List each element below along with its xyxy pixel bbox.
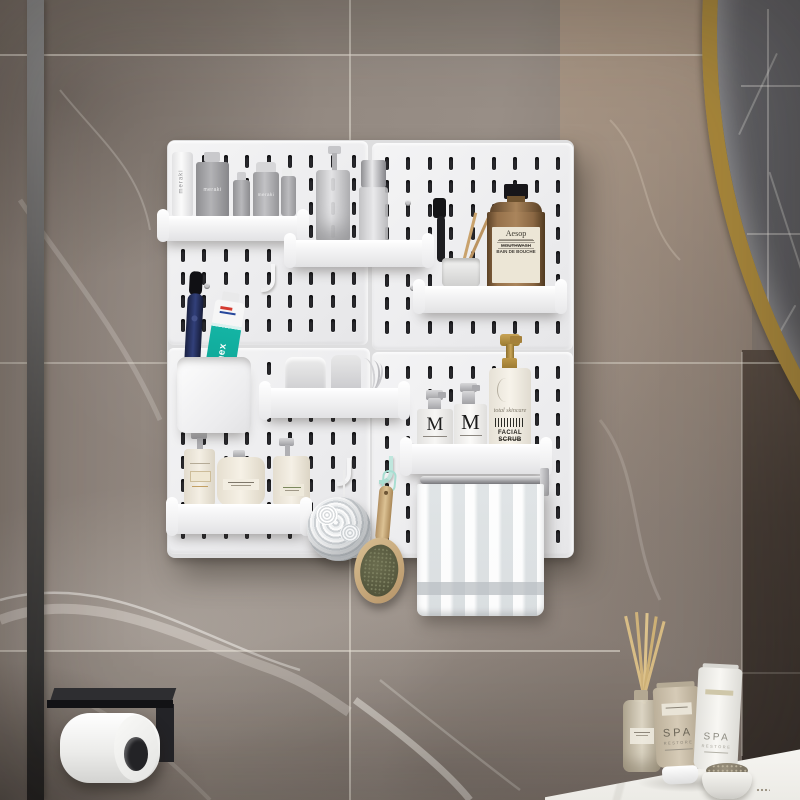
- spa-tube-white: SPA RESTORE: [693, 663, 742, 771]
- pegboard-slot: [181, 249, 185, 262]
- toothbrush-brush-head: [189, 271, 203, 296]
- pegboard-slot: [331, 432, 335, 445]
- pegboard-slot: [535, 413, 539, 426]
- pegboard-slot: [245, 319, 249, 332]
- tube-accent: [705, 689, 733, 695]
- pegboard-slot: [556, 251, 560, 264]
- pegboard-slot: [449, 204, 453, 217]
- pegboard-slot: [224, 249, 228, 262]
- pegboard-slot: [352, 202, 356, 215]
- brush-head: [351, 536, 407, 606]
- pegboard-slot: [556, 460, 560, 473]
- toothpaste-logo-mark: [220, 311, 236, 315]
- face-sketch: [497, 378, 515, 402]
- toothbrush-cup: [442, 258, 480, 287]
- pegboard-slot: [556, 413, 560, 426]
- pegboard-slot: [471, 180, 475, 193]
- pegboard-slot: [428, 180, 432, 193]
- pegboard-slot: [309, 319, 313, 332]
- pump-cap: [204, 152, 220, 162]
- pegboard-slot: [181, 295, 185, 308]
- pegboard-slot: [309, 272, 313, 285]
- aesop-bottle: Aesop MOUTHWASH BAIN DE BOUCHE: [487, 212, 545, 290]
- pegboard-slot: [513, 157, 517, 170]
- pegboard-slot: [352, 456, 356, 469]
- pegboard-slot: [471, 366, 475, 379]
- pegboard-slot: [202, 249, 206, 262]
- scrub-script: total skincare: [489, 408, 531, 415]
- shelf-middle: [261, 388, 408, 418]
- pegboard-slot: [492, 157, 496, 170]
- grout-line: [742, 672, 800, 674]
- scattered-salt: [756, 788, 770, 793]
- pegboard-slot: [352, 295, 356, 308]
- pegboard-slot: [309, 225, 313, 238]
- lotion-jar: [217, 457, 265, 506]
- meraki-pump-bottle: meraki: [196, 162, 229, 218]
- pegboard-slot: [267, 456, 271, 469]
- mount-screw: [405, 200, 411, 206]
- pegboard-slot: [309, 432, 313, 445]
- pegboard-slot: [513, 321, 517, 334]
- pegboard-slot: [202, 319, 206, 332]
- pegboard-slot: [449, 180, 453, 193]
- label-fine-print: [231, 485, 251, 486]
- label-fine-print: [190, 463, 210, 464]
- pegboard-slot: [267, 479, 271, 492]
- bathroom-scene: meraki meraki meraki Aesop MOUTHWASH BAI…: [0, 0, 800, 800]
- aesop-brand: Aesop: [492, 229, 540, 238]
- pegboard-slot: [406, 366, 410, 379]
- pegboard-slot: [471, 321, 475, 334]
- pegboard-slot: [556, 157, 560, 170]
- pegboard-slot: [352, 319, 356, 332]
- facial-scrub-bottle: total skincare FACIAL SCRUB: [489, 368, 531, 448]
- pegboard-slot: [245, 432, 249, 445]
- pegboard-slot: [288, 295, 292, 308]
- pegboard-slot: [352, 178, 356, 191]
- pegboard-slot: [385, 274, 389, 287]
- m-right-letter: M: [454, 410, 487, 434]
- pegboard-slot: [471, 157, 475, 170]
- clear-bottle: [359, 187, 388, 242]
- pegboard-slot: [331, 295, 335, 308]
- brush-handle-hole: [384, 491, 388, 495]
- mirror-vein: [769, 172, 800, 287]
- pegboard-slot: [535, 389, 539, 402]
- mirror-vein: [738, 53, 778, 135]
- pegboard-slot: [181, 272, 185, 285]
- pegboard-slot: [385, 436, 389, 449]
- pegboard-slot: [181, 319, 185, 332]
- label-fine-print: [228, 482, 254, 483]
- pegboard-slot: [449, 366, 453, 379]
- lotion-tall-bottle: [184, 449, 215, 506]
- m-left-letter: M: [417, 414, 453, 436]
- pegboard-slot: [224, 432, 228, 445]
- pegboard-slot: [556, 483, 560, 496]
- loofah-ruffle: [316, 505, 338, 525]
- small-grey-bottle: [233, 180, 250, 218]
- pegboard-slot: [245, 155, 249, 168]
- toothpaste-logo-mark: [220, 306, 232, 311]
- label-fine-print: [460, 435, 482, 436]
- towel-rail: [420, 476, 548, 484]
- brush-handle: [375, 485, 394, 542]
- label-fine-print: [192, 486, 208, 487]
- pegboard-slot: [449, 389, 453, 402]
- pegboard-slot: [406, 157, 410, 170]
- holder-cup: [177, 357, 251, 433]
- pegboard-slot: [385, 366, 389, 379]
- pegboard-slot: [535, 321, 539, 334]
- pegboard-slot: [428, 321, 432, 334]
- pegboard-slot: [267, 295, 271, 308]
- pegboard-slot: [267, 432, 271, 445]
- label-fine-print: [665, 748, 693, 750]
- mirror-reflection-seam: [741, 85, 800, 87]
- pegboard-slot: [181, 432, 185, 445]
- pegboard-slot: [352, 272, 356, 285]
- tile-bottom-left: [0, 651, 349, 800]
- brush-bristles: [361, 546, 397, 595]
- pegboard-slot: [385, 321, 389, 334]
- pegboard-slot: [331, 319, 335, 332]
- tube-top-label: [661, 702, 692, 716]
- shelf-top-right: [415, 286, 565, 313]
- label-fine-print: [704, 751, 728, 753]
- pegboard-slot: [535, 180, 539, 193]
- brush-bristle-pad: [358, 543, 400, 598]
- pegboard-slot: [288, 319, 292, 332]
- pegboard-slot: [352, 432, 356, 445]
- label-fine-print: [285, 490, 299, 491]
- meraki-spray-label: meraki: [253, 192, 279, 197]
- aesop-product-line2: BAIN DE BOUCHE: [492, 249, 540, 254]
- grout-line: [0, 650, 620, 652]
- toothbrush-head: [433, 198, 446, 218]
- pegboard-slot: [492, 180, 496, 193]
- barcode: [495, 418, 525, 427]
- meraki-tube: meraki: [172, 152, 193, 216]
- pegboard-slot: [406, 180, 410, 193]
- label-rule: [498, 240, 534, 241]
- pegboard-slot: [428, 157, 432, 170]
- pegboard-slot: [428, 366, 432, 379]
- pegboard-slot: [288, 155, 292, 168]
- scrub-spout: [510, 336, 522, 343]
- pump-stem: [332, 153, 337, 171]
- m-bottle-left: M: [417, 409, 453, 449]
- pegboard-slot: [556, 436, 560, 449]
- pegboard-slot: [352, 155, 356, 168]
- dark-tile-column: [742, 350, 800, 770]
- pegboard-slot: [556, 530, 560, 543]
- grout-line: [741, 352, 743, 756]
- shelf-middle-right: [402, 444, 550, 474]
- diffuser-label: [630, 728, 654, 744]
- pegboard-slot: [449, 227, 453, 240]
- pegboard-slot: [556, 227, 560, 240]
- small-bottle: [281, 176, 296, 216]
- label-fine-print: [283, 487, 301, 488]
- pegboard-slot: [556, 366, 560, 379]
- scrub-name: FACIAL SCRUB: [489, 430, 531, 444]
- chrome-cap: [361, 160, 386, 188]
- m-right-neck: [462, 391, 475, 405]
- pegboard-slot: [535, 157, 539, 170]
- black-toothbrush: [437, 216, 445, 262]
- pegboard-slot: [331, 456, 335, 469]
- pegboard-slot: [385, 297, 389, 310]
- pegboard-slot: [309, 155, 313, 168]
- pegboard-slot: [309, 202, 313, 215]
- label-fine-print: [666, 706, 688, 708]
- pegboard-slot: [449, 157, 453, 170]
- mount-screw: [204, 283, 210, 289]
- roll-core-hole: [124, 737, 148, 771]
- pegboard-slot: [267, 319, 271, 332]
- pegboard-slot: [288, 272, 292, 285]
- grout-line: [0, 54, 800, 56]
- pegboard-slot: [556, 180, 560, 193]
- pegboard-slot: [331, 479, 335, 492]
- pegboard-slot: [406, 227, 410, 240]
- tube-body: SPA RESTORE: [693, 667, 742, 771]
- meraki-tube-label: meraki: [179, 151, 186, 211]
- pegboard-slot: [267, 362, 271, 375]
- pegboard-slot: [331, 272, 335, 285]
- label-fine-print: [634, 732, 650, 733]
- pegboard-slot: [309, 178, 313, 191]
- pegboard-slot: [267, 249, 271, 262]
- pegboard-slot: [535, 366, 539, 379]
- towel: [417, 484, 544, 616]
- label-fine-print: [423, 436, 447, 437]
- pegboard-slot: [556, 321, 560, 334]
- pegboard-slot: [224, 272, 228, 285]
- towel-band: [417, 582, 544, 595]
- pegboard-slot: [245, 272, 249, 285]
- pegboard-slot: [449, 321, 453, 334]
- pegboard-slot: [245, 249, 249, 262]
- aesop-product-line1: MOUTHWASH: [492, 243, 540, 248]
- spa-white-line: RESTORE: [694, 744, 738, 751]
- pegboard-slot: [428, 204, 432, 217]
- clear-pump-bottle: [316, 170, 350, 242]
- pegboard-slot: [556, 389, 560, 402]
- pegboard-slot: [556, 506, 560, 519]
- tp-holder-edge: [47, 700, 173, 708]
- pegboard-slot: [406, 321, 410, 334]
- pegboard-slot: [309, 295, 313, 308]
- pegboard-slot: [352, 225, 356, 238]
- lotion3-label: [280, 484, 304, 496]
- pegboard-slot: [406, 297, 410, 310]
- lotion-label: [190, 471, 211, 482]
- aesop-label: Aesop MOUTHWASH BAIN DE BOUCHE: [492, 227, 540, 283]
- shelf-top-middle: [286, 240, 432, 267]
- shower-frame: [27, 0, 44, 800]
- meraki-bottle-label: meraki: [196, 188, 229, 194]
- m-bottle-right: M: [454, 404, 487, 449]
- jar-label: [223, 479, 259, 490]
- pegboard-slot: [556, 204, 560, 217]
- pegboard-slot: [352, 479, 356, 492]
- mirror-reflection-seam: [747, 233, 800, 235]
- meraki-spray: meraki: [253, 172, 279, 218]
- shelf-bottom-left: [168, 504, 310, 534]
- pegboard-slot: [492, 321, 496, 334]
- toilet-paper-roll: [60, 713, 160, 783]
- label-fine-print: [636, 735, 648, 736]
